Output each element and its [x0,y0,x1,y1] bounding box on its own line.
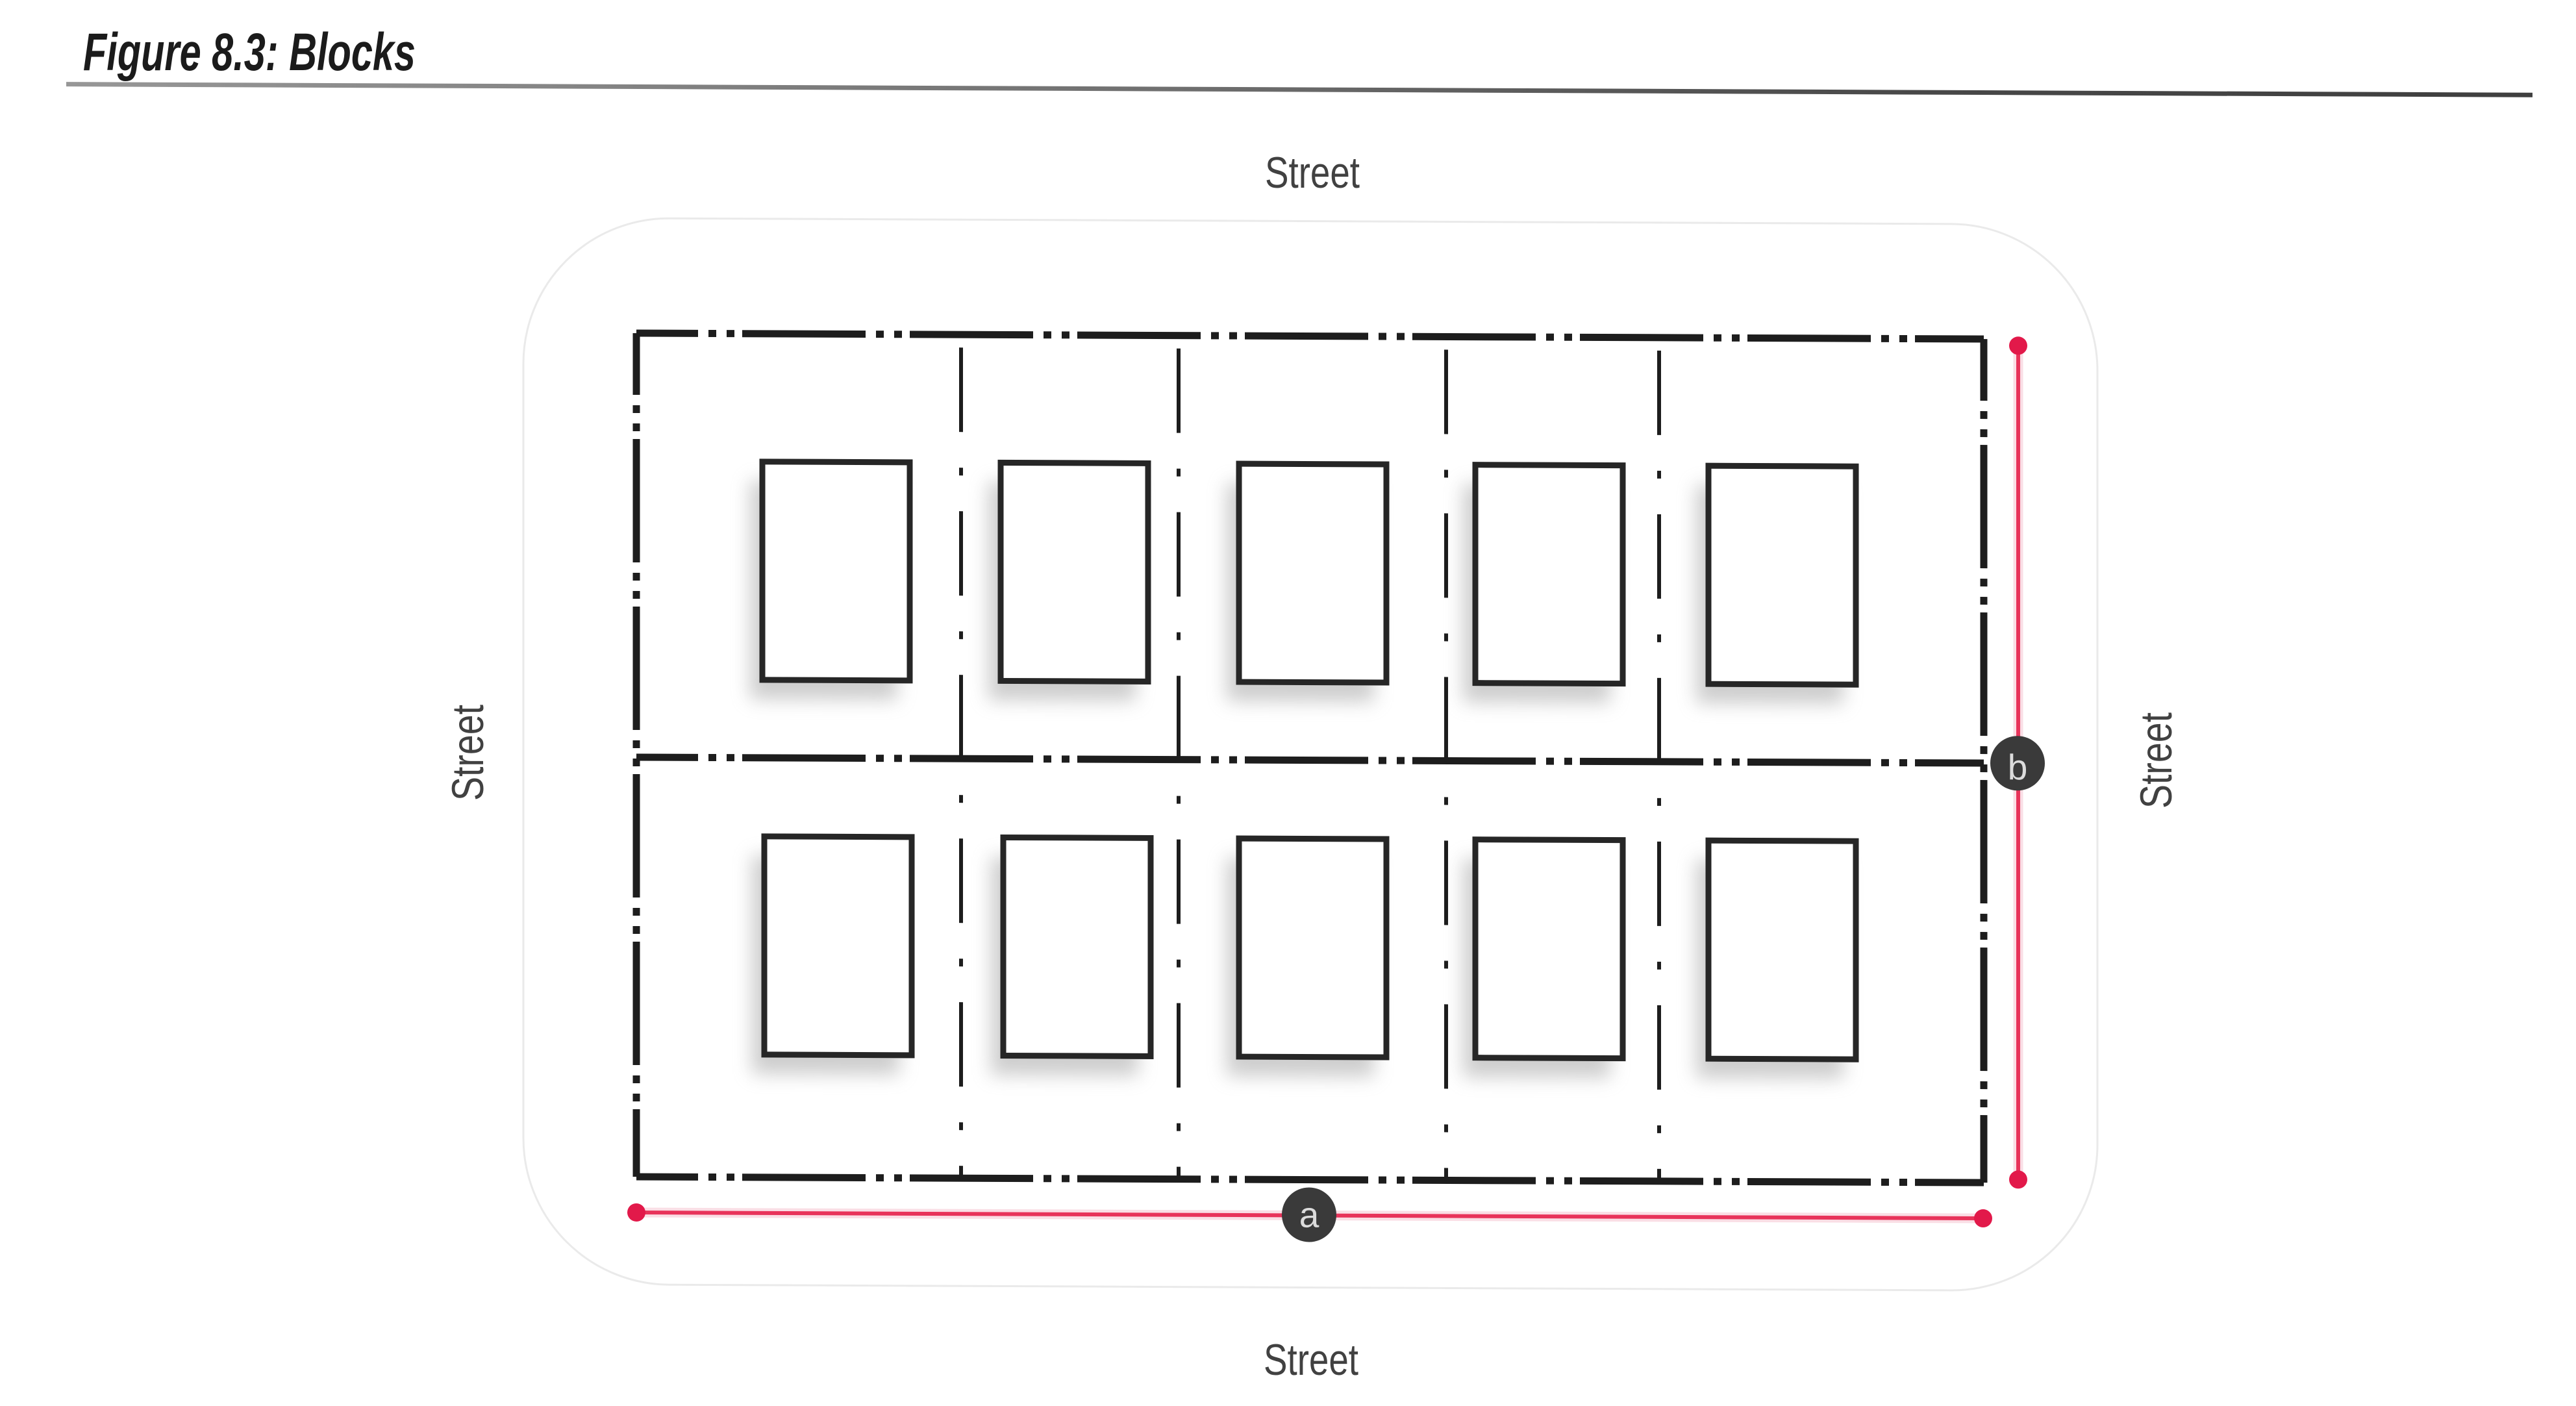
svg-text:a: a [1299,1194,1319,1235]
svg-text:Street: Street [1264,1335,1358,1385]
svg-text:b: b [2008,747,2028,787]
svg-text:Street: Street [1265,148,1360,197]
svg-text:Street: Street [2131,712,2181,809]
svg-text:Street: Street [443,705,493,801]
svg-text:Figure 8.3: Blocks: Figure 8.3: Blocks [83,23,416,82]
